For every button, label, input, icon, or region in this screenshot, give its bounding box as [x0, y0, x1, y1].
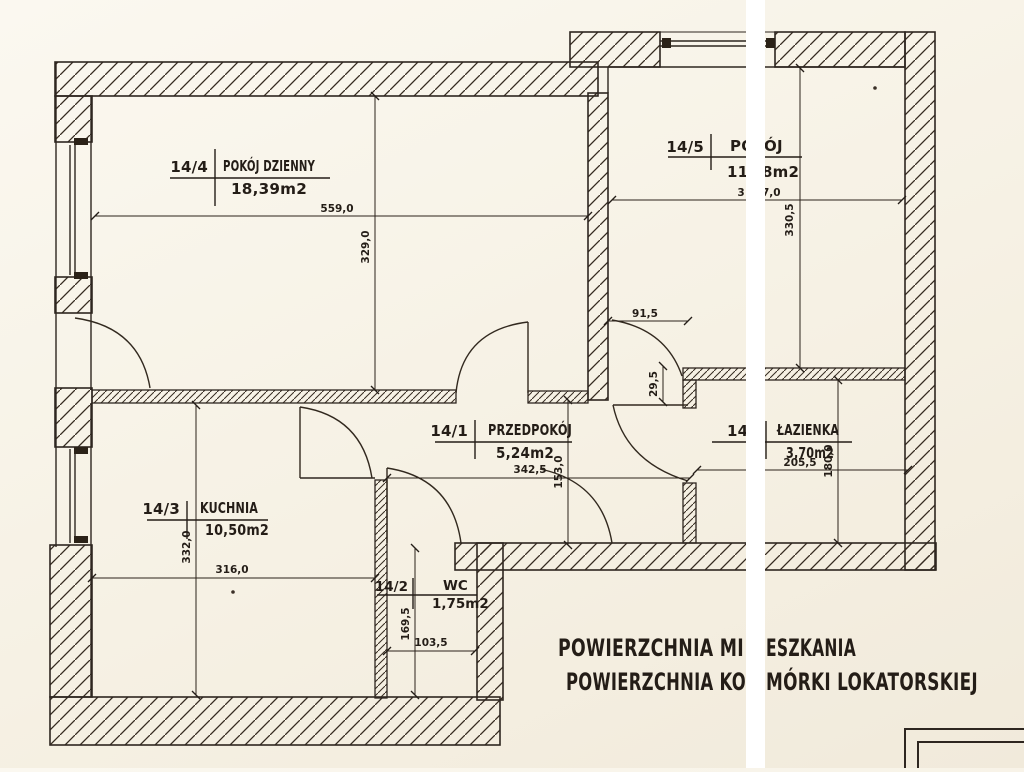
window-living-cap-top [74, 138, 88, 145]
dim-room2-depth: 330,5 [784, 203, 796, 236]
label-living-area: 18,39m2 [231, 180, 307, 198]
label-kitchen-area: 10,50m2 [205, 521, 269, 539]
footer-line2-right: MÓRKI LOKATORSKIEJ [766, 666, 978, 696]
label-room2-area-right: 8m2 [762, 163, 799, 181]
footer-text: POWIERZCHNIA MI ESZKANIA POWIERZCHNIA KO… [558, 634, 978, 696]
window-living-cap-bottom [74, 272, 88, 279]
dim-wall-offset: 29,5 [648, 371, 660, 397]
wall-bath-top [683, 368, 905, 380]
dim-room2-door: 91,5 [632, 308, 658, 320]
door-corridor-arc [540, 469, 612, 543]
dimension-texts: 559,0 329,0 3 7,0 330,5 91,5 29,5 342,5 … [181, 187, 835, 649]
inset-box-outer [905, 729, 1024, 768]
label-living-number: 14/4 [170, 158, 208, 176]
footer-line1-left: POWIERZCHNIA MI [558, 634, 744, 662]
door-wc-arc [387, 468, 461, 543]
wall-central-column [588, 93, 608, 400]
label-kitchen: 14/3 KUCHNIA 10,50m2 [142, 499, 269, 539]
door-kitchen-arc [300, 407, 372, 478]
door-living-arc [456, 322, 528, 393]
label-wc-name: WC [443, 578, 468, 594]
wall-left-pier-low [55, 388, 92, 447]
door-room2-arc [612, 320, 682, 376]
window-room2-cap-left [662, 38, 671, 48]
scan-gap-band [746, 0, 765, 768]
wall-top-right-b [775, 32, 905, 67]
corner-inset-box [905, 729, 1024, 768]
label-wc: 14/2 WC 1,75m2 [375, 578, 489, 612]
wall-top-right-a [570, 32, 660, 67]
dim-wc-depth: 169,5 [400, 607, 412, 640]
dim-living-width: 559,0 [320, 203, 353, 215]
door-balcony-arc [75, 318, 150, 388]
label-bathroom-area: 3,70m2 [786, 444, 834, 462]
floor-plan-svg: 559,0 329,0 3 7,0 330,5 91,5 29,5 342,5 … [0, 0, 1024, 768]
wall-bath-stub-bottom [683, 483, 696, 543]
windows [70, 38, 775, 543]
window-room2-cap-right [766, 38, 775, 48]
dim-hall-depth: 153,0 [553, 455, 565, 488]
dim-wc-width: 103,5 [414, 637, 447, 649]
window-kitchen-cap-bottom [74, 536, 88, 543]
dim-living-depth: 329,0 [360, 230, 372, 263]
dim-room2-width-left: 3 [737, 187, 744, 199]
label-living-name: POKÓJ DZIENNY [223, 156, 316, 175]
label-wc-number: 14/2 [375, 579, 408, 595]
label-hall: 14/1 PRZEDPOKÓJ 5,24m2 [430, 420, 572, 462]
window-kitchen-cap-top [74, 447, 88, 454]
label-bathroom-name: ŁAZIENKA [776, 421, 839, 439]
footer-line1-right: ESZKANIA [766, 634, 856, 662]
wall-living-kitchen [92, 390, 456, 403]
wall-right [905, 32, 935, 570]
label-hall-area: 5,24m2 [496, 444, 554, 462]
dim-hall-width: 342,5 [513, 464, 546, 476]
floor-plan: 559,0 329,0 3 7,0 330,5 91,5 29,5 342,5 … [0, 0, 1024, 772]
label-room2: 14/5 PO ÓJ 11, 8m2 [666, 134, 802, 181]
wall-top-left [55, 62, 598, 96]
wall-bottom [50, 697, 500, 745]
label-living-room: 14/4 POKÓJ DZIENNY 18,39m2 [170, 149, 330, 206]
label-kitchen-number: 14/3 [142, 500, 180, 518]
label-hall-number: 14/1 [430, 422, 468, 440]
wall-mid-bottom [455, 543, 936, 570]
label-room2-number: 14/5 [666, 138, 704, 156]
door-bathroom-arc [613, 405, 688, 481]
scan-speck-2 [873, 86, 877, 90]
label-kitchen-name: KUCHNIA [200, 499, 258, 517]
footer-line2-left: POWIERZCHNIA KO [566, 668, 746, 696]
wall-left-bottom [50, 545, 92, 697]
dim-kitchen-width: 316,0 [215, 564, 248, 576]
scan-speck-1 [231, 590, 235, 594]
label-hall-name: PRZEDPOKÓJ [488, 420, 572, 439]
label-bathroom: 14/ ŁAZIENKA 3,70m2 [712, 421, 852, 462]
wall-left-pier-mid [55, 277, 92, 313]
wall-bath-stub-top [683, 380, 696, 408]
inset-box-inner [918, 742, 1024, 768]
label-wc-area: 1,75m2 [432, 596, 489, 612]
wall-recess [528, 391, 588, 403]
label-room2-name-right: ÓJ [764, 136, 783, 155]
wall-left-pier-top [55, 96, 92, 142]
